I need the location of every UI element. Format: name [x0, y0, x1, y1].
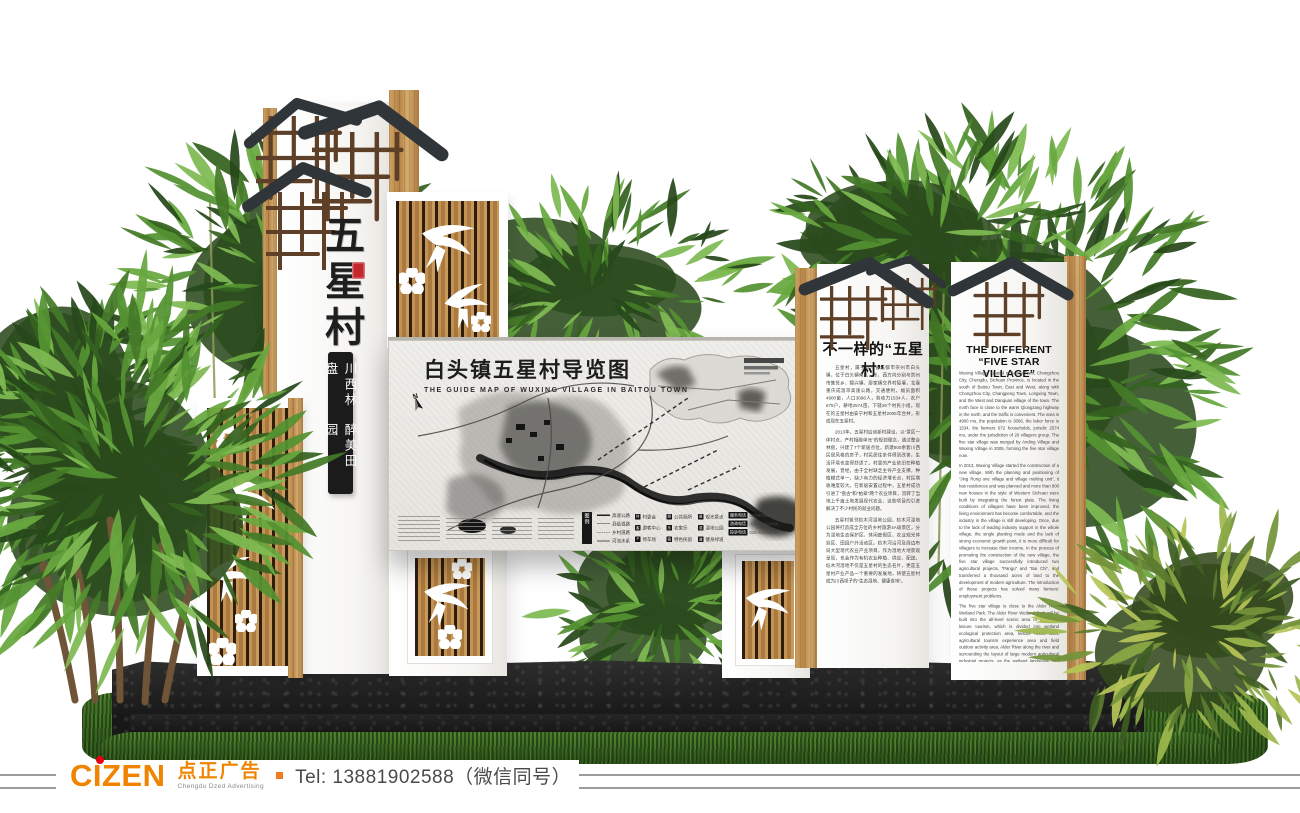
logo-sub-text: Chengdu Dzed Advertising [178, 783, 265, 790]
divider-line-left [0, 787, 56, 789]
foreground-foliage [0, 0, 1300, 813]
brand-bar: CIZEN 点正广告 Chengdu Dzed Advertising Tel:… [62, 760, 579, 791]
scene-canvas: 五星村 川西林盘 醉美田园 [0, 0, 1300, 813]
divider-line-left [0, 774, 56, 776]
logo-cn-block: 点正广告 Chengdu Dzed Advertising [178, 762, 265, 790]
cizen-logo: CIZEN [70, 760, 166, 791]
logo-red-dot-icon [96, 756, 104, 764]
bullet-icon [276, 772, 283, 779]
logo-cn-text: 点正广告 [178, 762, 265, 781]
phone-number: Tel: 13881902588（微信同号） [295, 762, 571, 789]
